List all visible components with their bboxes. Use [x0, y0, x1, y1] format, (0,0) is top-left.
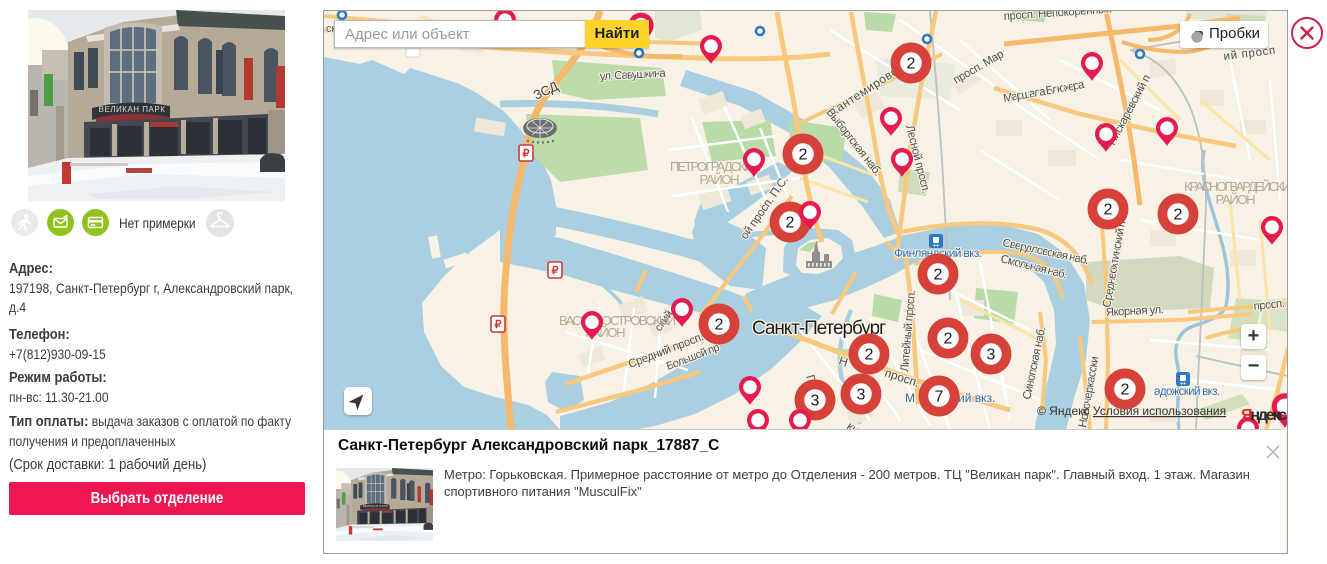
svg-text:2: 2: [907, 56, 916, 73]
svg-text:2: 2: [1121, 382, 1130, 399]
svg-text:7: 7: [935, 389, 944, 406]
svg-text:3: 3: [811, 393, 820, 410]
svg-text:3: 3: [857, 387, 866, 404]
svg-text:2: 2: [1174, 207, 1183, 224]
svg-text:РАЙОН: РАЙОН: [1216, 192, 1257, 207]
svg-text:Яндекс: Яндекс: [1241, 407, 1287, 424]
svg-text:₽: ₽: [495, 319, 502, 331]
svg-text:₽: ₽: [552, 265, 559, 277]
svg-text:2: 2: [799, 147, 808, 164]
svg-text:ий вкз.: ий вкз.: [958, 391, 995, 405]
svg-text:2: 2: [865, 347, 874, 364]
svg-text:₽: ₽: [523, 148, 530, 160]
svg-text:РАЙОН: РАЙОН: [700, 172, 741, 187]
svg-text:2: 2: [1104, 202, 1113, 219]
svg-text:3: 3: [987, 347, 996, 364]
svg-text:2: 2: [786, 215, 795, 232]
svg-text:М: М: [905, 391, 915, 405]
svg-text:2: 2: [934, 267, 943, 284]
svg-text:2: 2: [944, 331, 953, 348]
svg-text:2: 2: [715, 317, 724, 334]
svg-text:адожский вкз.: адожский вкз.: [1154, 384, 1220, 398]
svg-text:ВЕЛИКАН ПАРК: ВЕЛИКАН ПАРК: [99, 105, 166, 114]
